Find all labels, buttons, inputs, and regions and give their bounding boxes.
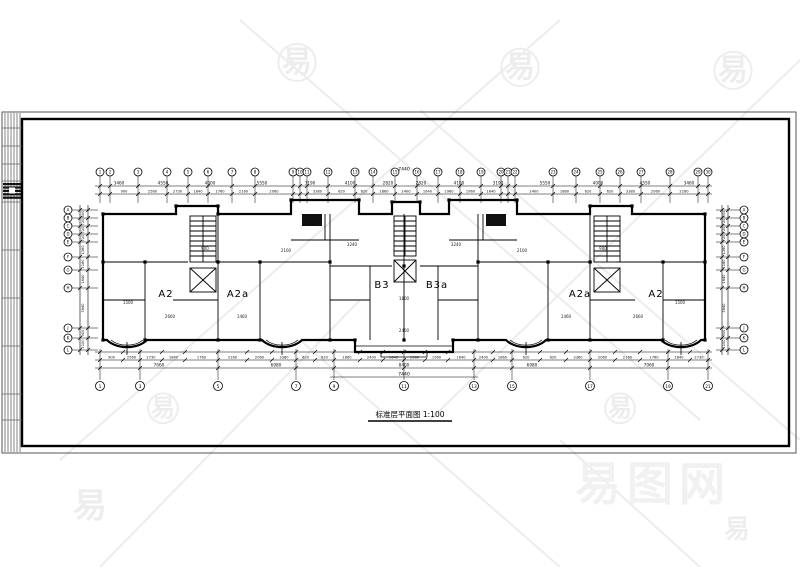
dimension-text-minor: 1860 — [342, 356, 352, 360]
dimension-text-major: 4100 — [345, 180, 356, 185]
dimension-text-minor: 2060 — [598, 356, 608, 360]
column — [258, 260, 261, 263]
watermark-glyph: 易 — [724, 515, 750, 545]
column — [546, 260, 549, 263]
grid-number-top: 26 — [617, 170, 623, 175]
grid-number-top: 6 — [207, 170, 210, 175]
column — [174, 204, 177, 207]
dimension-text-vertical: 1180 — [722, 259, 726, 269]
watermark-glyph: 易 — [151, 394, 175, 422]
grid-letter-right: J — [742, 326, 744, 331]
dimension-text-vertical: 720 — [81, 218, 85, 226]
dimension-text-major: 4000 — [205, 180, 216, 185]
drawing-title-group: 标准层平面图 1:100 — [368, 409, 452, 421]
dimension-text-vertical: 3640 — [81, 303, 85, 313]
unit-label: A2a — [569, 289, 591, 300]
dimension-text-minor: 620 — [585, 190, 593, 194]
plan-annotation: 2660 — [633, 314, 644, 319]
plan-annotation: 3240 — [347, 242, 358, 247]
watermark-glyph: 易 — [718, 53, 748, 88]
dimension-text-minor: 1760 — [215, 190, 225, 194]
dimension-text-major: 7060 — [154, 362, 165, 367]
dimension-text-minor: 2730 — [173, 190, 183, 194]
grid-number-top: 20 — [498, 170, 504, 175]
unit-label: A2 — [158, 289, 173, 300]
column — [328, 260, 331, 263]
dimension-text-minor: 1960 — [432, 356, 442, 360]
column — [703, 260, 706, 263]
dimension-text-minor: 1640 — [423, 190, 433, 194]
grid-letter-left: K — [67, 336, 70, 341]
column — [353, 338, 356, 341]
plan-annotation: 3240 — [451, 242, 462, 247]
column — [447, 198, 450, 201]
grid-number-top: 24 — [573, 170, 579, 175]
dimension-text-minor: 1860 — [379, 190, 389, 194]
dimension-text-major: 2820 — [383, 180, 394, 185]
plan-annotation: 2100 — [281, 248, 292, 253]
grid-number-bottom: 13 — [471, 384, 477, 390]
grid-number-top: 8 — [254, 170, 257, 175]
dimension-text-minor: 2730 — [146, 356, 156, 360]
grid-letter-left: J — [66, 326, 68, 331]
grid-letter-right: D — [742, 232, 745, 237]
grid-number-top: 27 — [638, 170, 644, 175]
dimension-text-minor: 620 — [321, 356, 329, 360]
dimension-text-minor: 3380 — [313, 190, 323, 194]
dimension-text-minor: 2400 — [401, 190, 411, 194]
site-watermark: 易图网 — [575, 457, 731, 511]
column — [588, 204, 591, 207]
column — [216, 338, 219, 341]
column — [328, 338, 331, 341]
dimension-text-major: 6980 — [271, 362, 282, 367]
dimension-text-minor: 1640 — [389, 356, 399, 360]
column — [101, 338, 104, 341]
dimension-text-minor: 2560 — [127, 356, 137, 360]
dimension-text-minor: 1860 — [560, 190, 570, 194]
dimension-text-vertical: 500 — [722, 210, 726, 218]
overall-dimension-bottom: 7440 — [398, 372, 410, 378]
grid-letter-right: H — [742, 286, 745, 291]
grid-letter-right: K — [743, 336, 746, 341]
dimension-text-minor: 1760 — [649, 356, 659, 360]
column — [143, 260, 146, 263]
dimension-text-vertical: 900 — [722, 329, 726, 337]
dimension-text-major: 4100 — [454, 180, 465, 185]
grid-letter-right: C — [743, 224, 746, 229]
overall-dimension-top: 7440 — [398, 167, 410, 173]
dimension-text-minor: 3380 — [626, 190, 636, 194]
dimension-text-major: 3190 — [493, 180, 504, 185]
column — [476, 260, 479, 263]
grid-letter-right: A — [743, 208, 746, 213]
dimension-text-vertical: 1360 — [722, 245, 726, 255]
dimension-text-vertical: 900 — [81, 329, 85, 337]
grid-number-top: 29 — [695, 170, 701, 175]
dimension-text-minor: 1960 — [410, 356, 420, 360]
watermark-glyph: 易 — [505, 50, 535, 85]
column — [630, 204, 633, 207]
dimension-text-vertical: 720 — [722, 234, 726, 242]
grid-number-bottom: 21 — [705, 384, 711, 390]
dimension-text-vertical: 1100 — [81, 339, 85, 349]
dimension-text-vertical: 1180 — [81, 259, 85, 269]
column — [418, 200, 421, 203]
grid-number-top: 14 — [370, 170, 376, 175]
unit-label: B3a — [426, 280, 448, 291]
dimension-text-minor: 2560 — [148, 190, 158, 194]
dimension-text-major: 5550 — [257, 180, 268, 185]
grid-number-top: 28 — [667, 170, 673, 175]
dimension-text-minor: 620 — [302, 356, 310, 360]
dimension-text-minor: 2160 — [623, 356, 633, 360]
dimension-text-vertical: 720 — [81, 234, 85, 242]
column — [703, 212, 706, 215]
column — [661, 338, 664, 341]
grid-number-top: 25 — [597, 170, 603, 175]
grid-letter-left: H — [66, 286, 69, 291]
dimension-text-minor: 620 — [338, 190, 346, 194]
watermark-glyph: 易 — [608, 394, 632, 422]
dimension-text-minor: 2400 — [479, 356, 489, 360]
dimension-text-major: 4550 — [640, 180, 651, 185]
plan-annotation: 1500 — [123, 300, 134, 305]
dimension-text-minor: 1760 — [197, 356, 207, 360]
dimension-text-minor: 3380 — [279, 356, 289, 360]
dimension-text-vertical: 720 — [722, 226, 726, 234]
grid-number-top: 13 — [352, 170, 358, 175]
grid-number-top: 9 — [292, 170, 295, 175]
dimension-text-major: 7060 — [644, 362, 655, 367]
dimension-text-minor: 2060 — [269, 190, 279, 194]
grid-number-top: 18 — [457, 170, 463, 175]
dimension-text-major: 4550 — [158, 180, 169, 185]
plan-annotation: 1500 — [675, 300, 686, 305]
dimension-text-vertical: 1360 — [81, 245, 85, 255]
grid-number-top: 10 — [297, 170, 303, 175]
dimension-text-minor: 1960 — [466, 190, 476, 194]
grid-number-top: 17 — [435, 170, 441, 175]
column — [402, 264, 405, 267]
column — [216, 204, 219, 207]
plan-annotation: 1460 — [561, 314, 572, 319]
grid-number-bottom: 11 — [401, 384, 407, 390]
column — [101, 260, 104, 263]
grid-number-bottom: 5 — [217, 384, 220, 390]
dimension-text-minor: 1860 — [498, 356, 508, 360]
grid-number-bottom: 3 — [139, 384, 142, 390]
column — [703, 338, 706, 341]
outer-border — [2, 112, 796, 453]
grid-number-top: 23 — [550, 170, 556, 175]
plan-annotation: 2400 — [399, 328, 410, 333]
column — [216, 260, 219, 263]
dimension-text-vertical: 1640 — [81, 274, 85, 284]
watermark-glyph: 易 — [282, 45, 312, 80]
dimension-text-minor: 2060 — [651, 190, 661, 194]
grid-number-top: 7 — [231, 170, 234, 175]
dimension-text-vertical: 3640 — [722, 303, 726, 313]
grid-number-top: 21 — [505, 170, 511, 175]
dimension-text-vertical: 720 — [722, 218, 726, 226]
stair-core-center — [394, 216, 416, 282]
dimension-text-minor: 1640 — [456, 356, 466, 360]
dimension-text-minor: 900 — [121, 190, 129, 194]
dimension-text-minor: 620 — [607, 190, 615, 194]
stair-core-left — [190, 216, 216, 292]
grid-number-bottom: 17 — [587, 384, 593, 390]
dimension-text-major: 2820 — [416, 180, 427, 185]
dimension-text-minor: 2060 — [255, 356, 265, 360]
unit-label: B3 — [374, 280, 389, 291]
column — [451, 338, 454, 341]
dimension-text-minor: 2730 — [694, 356, 704, 360]
grid-number-top: 19 — [478, 170, 484, 175]
column — [476, 338, 479, 341]
dimension-text-minor: 620 — [550, 356, 558, 360]
cad-floor-plan-sheet: 易易易易易易易 — [0, 0, 800, 567]
grid-number-top: 12 — [325, 170, 331, 175]
dimension-text-major: 4000 — [593, 180, 604, 185]
column — [101, 212, 104, 215]
sheet-frame — [2, 112, 796, 453]
grid-number-top: 16 — [414, 170, 420, 175]
dimension-text-vertical: 1100 — [722, 339, 726, 349]
dimension-text-vertical: 500 — [81, 210, 85, 218]
grid-number-bottom: 15 — [509, 384, 515, 390]
grid-number-top: 5 — [187, 170, 190, 175]
dimension-text-major: 3460 — [684, 180, 695, 185]
plan-annotation: 900 — [599, 246, 607, 251]
column — [402, 338, 405, 341]
dimension-text-vertical: 720 — [81, 226, 85, 234]
title-block-strip — [2, 113, 22, 452]
column — [515, 198, 518, 201]
dimension-text-minor: 2160 — [239, 190, 249, 194]
dimension-text-minor: 1840 — [674, 356, 684, 360]
dimension-text-minor: 3380 — [573, 356, 583, 360]
dimension-text-minor: 2400 — [529, 190, 539, 194]
grid-letter-left: B — [67, 216, 70, 221]
grid-number-bottom: 19 — [665, 384, 671, 390]
column — [588, 338, 591, 341]
column — [258, 338, 261, 341]
dimension-text-major: 6980 — [527, 362, 538, 367]
dimension-text-major: 3190 — [305, 180, 316, 185]
grid-number-top: 3 — [137, 170, 140, 175]
interior-walls — [103, 214, 705, 340]
column — [546, 338, 549, 341]
column — [216, 212, 219, 215]
grid-letter-left: C — [67, 224, 70, 229]
grid-number-top: 22 — [512, 170, 518, 175]
dimension-text-minor: 1640 — [486, 190, 496, 194]
column — [390, 200, 393, 203]
grid-number-bottom: 9 — [333, 384, 336, 390]
column — [661, 260, 664, 263]
dimension-text-major: 3460 — [114, 180, 125, 185]
grid-number-top: 2 — [109, 170, 112, 175]
dimension-text-major: 8400 — [399, 362, 410, 367]
grid-number-bottom: 1 — [99, 384, 102, 390]
grid-letter-left: D — [66, 232, 69, 237]
grid-number-top: 1 — [99, 170, 102, 175]
dimension-text-major: 5550 — [540, 180, 551, 185]
column — [588, 260, 591, 263]
column — [357, 198, 360, 201]
dimension-text-minor: 2160 — [228, 356, 238, 360]
dimension-text-vertical: 1640 — [722, 274, 726, 284]
grid-letter-left: A — [67, 208, 70, 213]
plan-annotation: 1800 — [399, 296, 410, 301]
dimension-text-minor: 1960 — [444, 190, 454, 194]
grid-number-top: 30 — [705, 170, 711, 175]
dimension-text-minor: 2400 — [367, 356, 377, 360]
grid-letter-right: G — [742, 268, 745, 273]
title-block-stamp — [3, 183, 21, 199]
plan-annotation: 900 — [201, 246, 209, 251]
plan-annotation: 1460 — [237, 314, 248, 319]
dimension-text-minor: 900 — [108, 356, 116, 360]
plan-title: 标准层平面图 1:100 — [376, 409, 445, 419]
watermark-glyph: 易 — [73, 486, 107, 526]
grid-letter-right: B — [743, 216, 746, 221]
grid-number-bottom: 7 — [295, 384, 298, 390]
unit-label: A2a — [227, 289, 249, 300]
plan-annotation: 2100 — [517, 248, 528, 253]
column — [289, 198, 292, 201]
grid-letter-left: G — [66, 268, 69, 273]
dimension-text-minor: 2160 — [679, 190, 689, 194]
dimension-text-minor: 620 — [361, 190, 369, 194]
grid-number-top: 4 — [166, 170, 169, 175]
plan-annotation: 2660 — [165, 314, 176, 319]
dimension-text-minor: 620 — [523, 356, 531, 360]
dimension-text-minor: 1840 — [169, 356, 179, 360]
grid-number-top: 11 — [304, 170, 310, 175]
column — [143, 338, 146, 341]
unit-label: A2 — [648, 289, 663, 300]
dimension-text-minor: 1840 — [193, 190, 203, 194]
floor-plan — [101, 198, 706, 357]
